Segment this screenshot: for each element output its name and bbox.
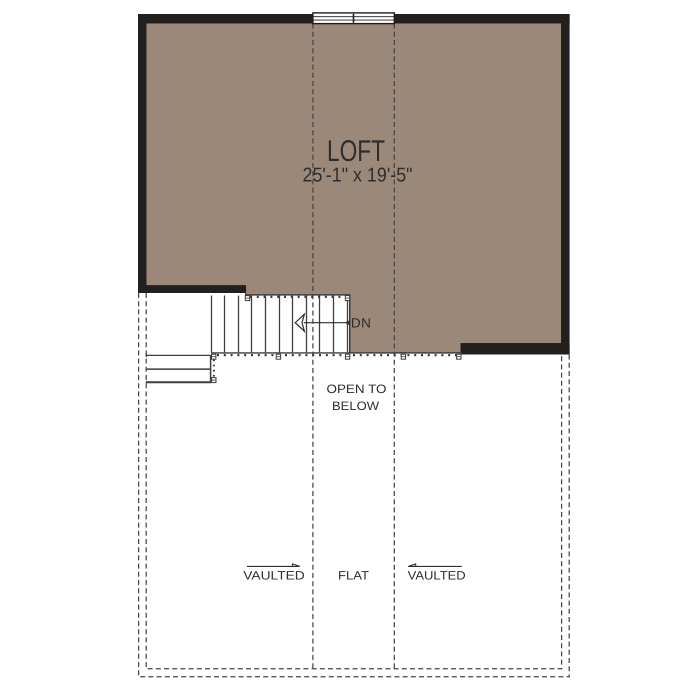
svg-text:BELOW: BELOW xyxy=(332,399,380,413)
svg-text:DN: DN xyxy=(351,316,372,331)
svg-text:FLAT: FLAT xyxy=(338,569,370,583)
svg-text:VAULTED: VAULTED xyxy=(408,569,466,583)
svg-text:VAULTED: VAULTED xyxy=(243,569,305,583)
svg-text:25'-1" x 19'-5": 25'-1" x 19'-5" xyxy=(303,165,413,187)
svg-text:OPEN TO: OPEN TO xyxy=(327,382,387,396)
svg-text:LOFT: LOFT xyxy=(327,135,385,168)
